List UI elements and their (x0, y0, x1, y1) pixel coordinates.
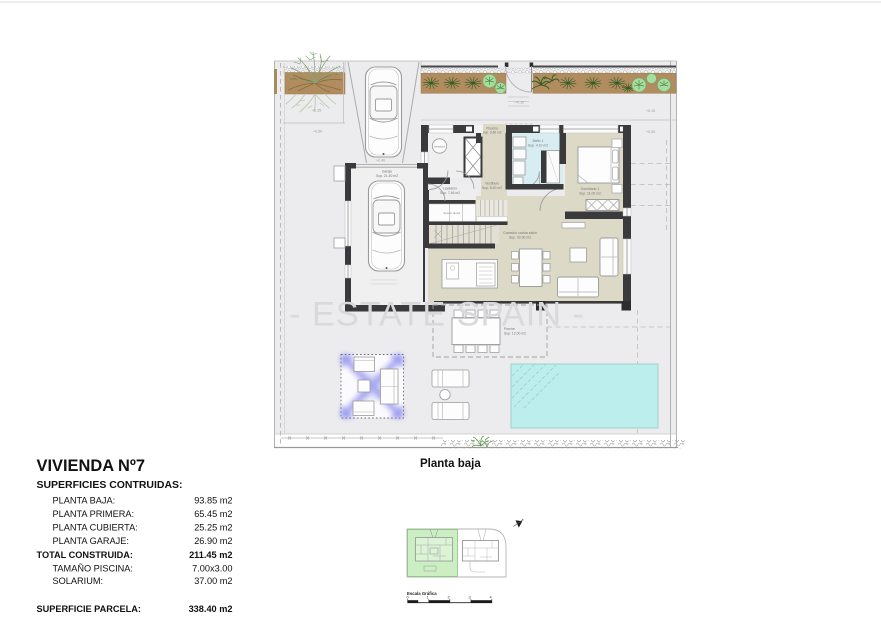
svg-text:SUPERFICIE PARCELA:: SUPERFICIE PARCELA: (37, 604, 141, 614)
svg-text:+0.40: +0.40 (376, 159, 385, 163)
svg-text:+0.15: +0.15 (646, 109, 655, 113)
svg-text:+0.35: +0.35 (312, 109, 321, 113)
svg-text:Dormitorio 1: Dormitorio 1 (581, 187, 600, 191)
svg-text:SUPERFICIES CONTRUIDAS:: SUPERFICIES CONTRUIDAS: (37, 480, 183, 491)
svg-text:Secad. lavad.: Secad. lavad. (443, 211, 461, 215)
svg-text:93.85 m2: 93.85 m2 (194, 496, 232, 506)
svg-text:TAMAÑO PISCINA:: TAMAÑO PISCINA: (53, 564, 133, 574)
svg-text:PLANTA CUBIERTA:: PLANTA CUBIERTA: (53, 523, 138, 533)
svg-text:Sup. 3.60 m2: Sup. 3.60 m2 (483, 131, 502, 135)
svg-text:Sup. 8.40 m2: Sup. 8.40 m2 (482, 186, 502, 190)
svg-text:37.00 m2: 37.00 m2 (194, 576, 232, 586)
svg-text:Planta baja: Planta baja (420, 458, 481, 470)
svg-text:Escala Gráfica: Escala Gráfica (407, 591, 437, 596)
svg-text:+0.50: +0.50 (313, 130, 322, 134)
svg-text:Sup. 30.30 m2: Sup. 30.30 m2 (509, 236, 531, 240)
svg-text:Sup. 4.10 m2: Sup. 4.10 m2 (528, 144, 548, 148)
svg-text:PLANTA BAJA:: PLANTA BAJA: (53, 496, 116, 506)
svg-text:SOLARIUM:: SOLARIUM: (53, 576, 104, 586)
svg-text:+0.50: +0.50 (646, 130, 655, 134)
svg-text:lavadora: lavadora (434, 145, 445, 149)
svg-text:- ESTATE SPAIN -: - ESTATE SPAIN - (289, 296, 585, 334)
svg-text:PLANTA GARAJE:: PLANTA GARAJE: (53, 536, 129, 546)
svg-text:+0.10: +0.10 (515, 101, 524, 105)
svg-text:Vestibulo: Vestibulo (485, 182, 499, 186)
svg-text:65.45 m2: 65.45 m2 (194, 509, 232, 519)
svg-text:25.25 m2: 25.25 m2 (194, 523, 232, 533)
svg-text:338.40 m2: 338.40 m2 (189, 604, 233, 614)
svg-text:TOTAL CONSTRUIDA:: TOTAL CONSTRUIDA: (37, 550, 133, 560)
svg-text:211.45 m2: 211.45 m2 (189, 550, 232, 560)
svg-text:1: 1 (427, 595, 429, 600)
svg-text:Baño 1: Baño 1 (533, 139, 544, 143)
svg-text:7.00x3.00: 7.00x3.00 (192, 564, 232, 574)
svg-text:VIVIENDA Nº7: VIVIENDA Nº7 (37, 457, 146, 475)
svg-text:26.90 m2: 26.90 m2 (194, 536, 232, 546)
svg-text:Garaje: Garaje (382, 170, 392, 174)
svg-text:Sup. 11.00 m2: Sup. 11.00 m2 (579, 192, 601, 196)
svg-text:PLANTA PRIMERA:: PLANTA PRIMERA: (53, 509, 135, 519)
svg-text:Sup. 21.40 m2: Sup. 21.40 m2 (376, 174, 398, 178)
svg-text:Comedor cocina salón: Comedor cocina salón (503, 231, 537, 235)
svg-text:2: 2 (448, 595, 450, 600)
svg-text:Lavadero: Lavadero (443, 187, 457, 191)
svg-text:3: 3 (469, 595, 471, 600)
